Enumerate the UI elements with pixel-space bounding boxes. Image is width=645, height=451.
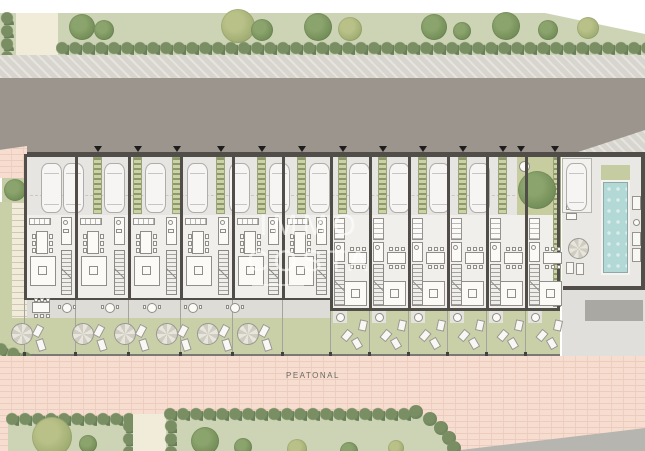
stairs-icon xyxy=(218,250,229,295)
chair-icon xyxy=(46,298,50,302)
terrace-table-icon xyxy=(188,303,198,313)
chair-icon xyxy=(83,248,87,253)
chair-icon xyxy=(506,265,510,269)
gate-post-icon xyxy=(407,352,410,356)
gate-post-icon xyxy=(446,352,449,356)
parking-marker-icon xyxy=(298,146,306,152)
toilet-icon xyxy=(492,245,497,250)
garden-parasol-icon xyxy=(197,323,219,345)
hedge-row-north xyxy=(56,41,645,56)
unit-wall xyxy=(408,154,411,311)
chair-icon xyxy=(83,234,87,239)
chair-icon xyxy=(473,247,477,251)
chair-icon xyxy=(199,305,202,309)
coffee-table-icon xyxy=(194,266,203,275)
road xyxy=(0,78,645,154)
planting-strip-icon xyxy=(458,157,467,214)
car-icon xyxy=(145,163,166,213)
kitchen-counter-icon xyxy=(490,218,501,240)
dining-table-icon xyxy=(192,231,204,254)
chair-icon xyxy=(34,298,38,302)
sun-lounger-icon xyxy=(566,262,574,274)
swimming-pool xyxy=(603,182,628,273)
communal-parasol-icon xyxy=(568,238,589,259)
planting-strip-icon xyxy=(93,157,102,214)
chair-icon xyxy=(551,247,555,251)
parking-marker-icon xyxy=(551,146,559,152)
south-park-mid-hedge-west xyxy=(164,420,177,451)
car-icon xyxy=(104,163,125,213)
tree-icon xyxy=(94,20,114,40)
coffee-table-icon xyxy=(351,289,360,298)
dining-table-icon xyxy=(465,252,484,264)
parking-marker-icon xyxy=(173,146,181,152)
tree-icon xyxy=(251,19,273,41)
car-icon xyxy=(566,163,587,211)
chair-icon xyxy=(40,314,44,318)
sun-lounger-icon xyxy=(632,248,641,262)
garden-table-icon xyxy=(336,313,345,322)
chair-icon xyxy=(136,248,140,253)
chair-icon xyxy=(551,265,555,269)
tree-icon xyxy=(538,20,558,40)
tree-icon xyxy=(4,179,26,201)
chair-icon xyxy=(395,265,399,269)
kitchen-counter-icon xyxy=(529,218,540,240)
chair-icon xyxy=(136,234,140,239)
garden-table-icon xyxy=(531,313,540,322)
planting-strip-icon xyxy=(257,157,266,214)
chair-icon xyxy=(188,234,192,239)
gate-post-icon xyxy=(281,352,284,356)
coffee-table-icon xyxy=(390,289,399,298)
chair-icon xyxy=(188,248,192,253)
unit-wall xyxy=(447,154,450,311)
car-icon xyxy=(187,163,208,213)
coffee-table-icon xyxy=(429,289,438,298)
unit-wall xyxy=(75,154,78,300)
planting-strip-icon xyxy=(338,157,347,214)
dining-table-icon xyxy=(36,231,48,254)
chair-icon xyxy=(153,234,157,239)
chair-icon xyxy=(434,265,438,269)
unit-wall xyxy=(486,154,489,311)
dining-table-icon xyxy=(140,231,152,254)
unit-wall xyxy=(128,154,131,300)
tree-icon xyxy=(221,9,255,43)
stairs-icon xyxy=(114,250,125,295)
chair-icon xyxy=(116,305,119,309)
tree-icon xyxy=(234,438,252,451)
unit-wall xyxy=(180,154,183,300)
gate-post-icon xyxy=(485,352,488,356)
gate-post-icon xyxy=(231,352,234,356)
dining-table-icon xyxy=(504,252,523,264)
car-icon xyxy=(309,163,330,213)
tree-icon xyxy=(69,14,95,40)
chair-icon xyxy=(49,241,53,246)
garden-divider xyxy=(408,311,409,355)
garden-divider xyxy=(282,300,283,355)
chair-icon xyxy=(158,305,161,309)
garden-parasol-icon xyxy=(72,323,94,345)
terrace-table-icon xyxy=(147,303,157,313)
sidewalk xyxy=(0,55,645,78)
toilet-icon xyxy=(116,220,121,225)
gate-post-icon xyxy=(524,352,527,356)
chair-icon xyxy=(512,247,516,251)
coffee-table-icon xyxy=(142,266,151,275)
toilet-icon xyxy=(453,245,458,250)
chair-icon xyxy=(83,241,87,246)
parking-marker-icon xyxy=(517,146,525,152)
sun-lounger-icon xyxy=(632,196,641,210)
garden-table-icon xyxy=(375,313,384,322)
site-plan: PEATONAL IMMO COSTA xyxy=(0,0,645,451)
toilet-icon xyxy=(63,220,68,225)
tree-icon xyxy=(338,17,362,41)
gray-pad xyxy=(585,300,643,321)
chair-icon xyxy=(46,314,50,318)
parking-marker-icon xyxy=(134,146,142,152)
watermark: IMMO COSTA xyxy=(230,208,390,288)
garden-parasol-icon xyxy=(114,323,136,345)
chair-icon xyxy=(143,305,146,309)
chair-icon xyxy=(49,248,53,253)
tree-icon xyxy=(492,12,520,40)
chair-icon xyxy=(32,248,36,253)
chair-icon xyxy=(226,305,229,309)
chair-icon xyxy=(188,241,192,246)
kitchen-counter-icon xyxy=(29,218,51,225)
parking-marker-icon xyxy=(258,146,266,152)
coffee-table-icon xyxy=(507,289,516,298)
chair-icon xyxy=(241,305,244,309)
dining-table-icon xyxy=(543,252,562,264)
unit-wall xyxy=(525,154,528,311)
chair-icon xyxy=(473,265,477,269)
parking-marker-icon xyxy=(379,146,387,152)
chair-icon xyxy=(395,247,399,251)
dining-table-icon xyxy=(87,231,99,254)
pool-area-east-wall xyxy=(641,157,645,290)
gate-post-icon xyxy=(329,352,332,356)
tree-icon xyxy=(32,417,72,451)
unit-wall xyxy=(24,154,27,300)
dining-table-icon xyxy=(426,252,445,264)
garden-parasol-icon xyxy=(237,323,259,345)
chair-icon xyxy=(100,248,104,253)
stairs-icon xyxy=(166,250,177,295)
toilet-icon xyxy=(531,245,536,250)
chair-icon xyxy=(136,241,140,246)
parking-marker-icon xyxy=(459,146,467,152)
tree-icon xyxy=(304,13,332,41)
tree-icon xyxy=(191,427,219,451)
planting-strip-icon xyxy=(378,157,387,214)
chair-icon xyxy=(205,241,209,246)
chair-icon xyxy=(479,265,483,269)
garden-divider xyxy=(447,311,448,355)
chair-icon xyxy=(518,265,522,269)
coffee-table-icon xyxy=(89,266,98,275)
sink-icon xyxy=(63,229,69,233)
south-park-left-hedge xyxy=(6,412,134,427)
watermark-underline xyxy=(252,284,304,286)
gate-post-icon xyxy=(127,352,130,356)
terrace-table-icon xyxy=(230,303,240,313)
chair-icon xyxy=(545,265,549,269)
chair-icon xyxy=(557,247,561,251)
garden-divider xyxy=(330,311,331,355)
hedge-icon xyxy=(447,441,461,451)
car-icon xyxy=(389,163,410,213)
pedestrian-path-label: PEATONAL xyxy=(286,371,366,383)
planting-strip-icon xyxy=(297,157,306,214)
chair-icon xyxy=(49,234,53,239)
gate-post-icon xyxy=(368,352,371,356)
north-path xyxy=(16,13,58,55)
terrace-table-icon xyxy=(62,303,72,313)
south-path-gap xyxy=(133,414,168,451)
chair-icon xyxy=(153,248,157,253)
communal-table-icon xyxy=(566,213,577,220)
tree-icon xyxy=(388,440,404,451)
south-park-mid-hedge xyxy=(164,407,414,422)
garden-divider xyxy=(525,311,526,355)
gate-post-icon xyxy=(179,352,182,356)
toilet-icon xyxy=(414,245,419,250)
chair-icon xyxy=(467,265,471,269)
coffee-table-icon xyxy=(546,289,555,298)
tree-icon xyxy=(577,17,599,39)
parking-marker-icon xyxy=(419,146,427,152)
chair-icon xyxy=(205,234,209,239)
sink-icon xyxy=(220,229,226,233)
garden-table-icon xyxy=(492,313,501,322)
toilet-icon xyxy=(168,220,173,225)
chair-icon xyxy=(557,265,561,269)
parking-marker-icon xyxy=(339,146,347,152)
garden-divider xyxy=(486,311,487,355)
stairs-icon xyxy=(61,250,72,295)
chair-icon xyxy=(428,247,432,251)
terrace-dining-table-icon xyxy=(32,302,50,313)
kitchen-counter-icon xyxy=(412,218,423,240)
chair-icon xyxy=(506,247,510,251)
chair-icon xyxy=(467,247,471,251)
car-icon xyxy=(63,163,84,213)
kitchen-counter-icon xyxy=(80,218,102,225)
west-path-corner xyxy=(0,146,27,178)
tree-icon xyxy=(453,22,471,40)
chair-icon xyxy=(100,234,104,239)
chair-icon xyxy=(479,247,483,251)
watermark-line1: IMMO xyxy=(230,208,390,244)
hedge-row-vertical xyxy=(0,12,16,56)
kitchen-counter-icon xyxy=(451,218,462,240)
chair-icon xyxy=(401,247,405,251)
chair-icon xyxy=(401,265,405,269)
kitchen-counter-icon xyxy=(133,218,155,225)
gate-post-icon xyxy=(23,352,26,356)
chair-icon xyxy=(545,247,549,251)
planting-strip-icon xyxy=(498,157,507,214)
chair-icon xyxy=(205,248,209,253)
chair-icon xyxy=(34,314,38,318)
garden-divider xyxy=(369,311,370,355)
tree-icon xyxy=(421,14,447,40)
terrace-table-icon xyxy=(105,303,115,313)
tree-icon xyxy=(79,435,97,451)
garden-table-icon xyxy=(414,313,423,322)
garden-parasol-icon xyxy=(11,323,33,345)
parking-marker-icon xyxy=(94,146,102,152)
planting-strip-icon xyxy=(216,157,225,214)
kitchen-counter-icon xyxy=(185,218,207,225)
coffee-table-icon xyxy=(38,266,47,275)
chair-icon xyxy=(518,247,522,251)
watermark-line2: COSTA xyxy=(230,244,390,280)
planting-strip-icon xyxy=(133,157,142,214)
chair-icon xyxy=(153,241,157,246)
chair-icon xyxy=(40,298,44,302)
car-icon xyxy=(349,163,370,213)
chair-icon xyxy=(101,305,104,309)
chair-icon xyxy=(73,305,76,309)
sink-icon xyxy=(168,229,174,233)
pool-planter xyxy=(601,165,630,180)
parking-marker-icon xyxy=(499,146,507,152)
garden-table-icon xyxy=(453,313,462,322)
chair-icon xyxy=(512,265,516,269)
parking-marker-icon xyxy=(217,146,225,152)
hedge-icon xyxy=(409,405,423,419)
sun-lounger-icon xyxy=(632,232,641,246)
toilet-icon xyxy=(220,220,225,225)
chair-icon xyxy=(100,241,104,246)
garden-parasol-icon xyxy=(156,323,178,345)
pool-side-table-icon xyxy=(633,219,640,226)
chair-icon xyxy=(184,305,187,309)
courtyard-tree-icon xyxy=(518,171,556,209)
car-icon xyxy=(269,163,290,213)
chair-icon xyxy=(440,247,444,251)
chair-icon xyxy=(440,265,444,269)
chair-icon xyxy=(32,241,36,246)
gate-post-icon xyxy=(74,352,77,356)
coffee-table-icon xyxy=(468,289,477,298)
chair-icon xyxy=(32,234,36,239)
chair-icon xyxy=(58,305,61,309)
planting-strip-icon xyxy=(418,157,427,214)
chair-icon xyxy=(428,265,432,269)
sink-icon xyxy=(116,229,122,233)
sun-lounger-icon xyxy=(576,263,584,275)
car-icon xyxy=(41,163,62,213)
chair-icon xyxy=(434,247,438,251)
